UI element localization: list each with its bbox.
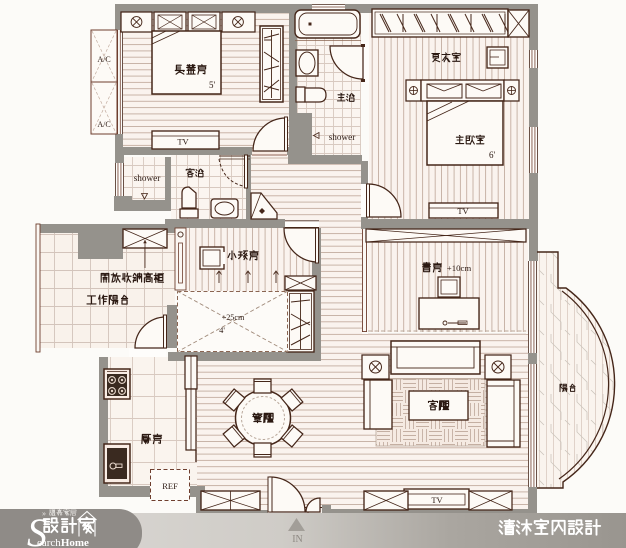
svg-text:5': 5' [209, 80, 216, 90]
svg-text:TV: TV [431, 495, 443, 505]
svg-text:6': 6' [489, 150, 496, 160]
svg-text:»: » [42, 509, 46, 518]
svg-text:earchHome: earchHome [37, 537, 89, 548]
svg-text:IN: IN [292, 534, 303, 545]
svg-text:4': 4' [219, 325, 225, 335]
svg-text:+25cm: +25cm [222, 313, 245, 322]
svg-text:+10cm: +10cm [447, 263, 472, 273]
svg-text:REF: REF [162, 481, 178, 491]
svg-text:A/C: A/C [97, 55, 110, 64]
svg-text:shower: shower [329, 132, 356, 142]
svg-text:shower: shower [134, 173, 161, 183]
svg-text:TV: TV [177, 137, 189, 147]
svg-text:TV: TV [457, 206, 469, 216]
svg-text:A/C: A/C [97, 120, 110, 129]
